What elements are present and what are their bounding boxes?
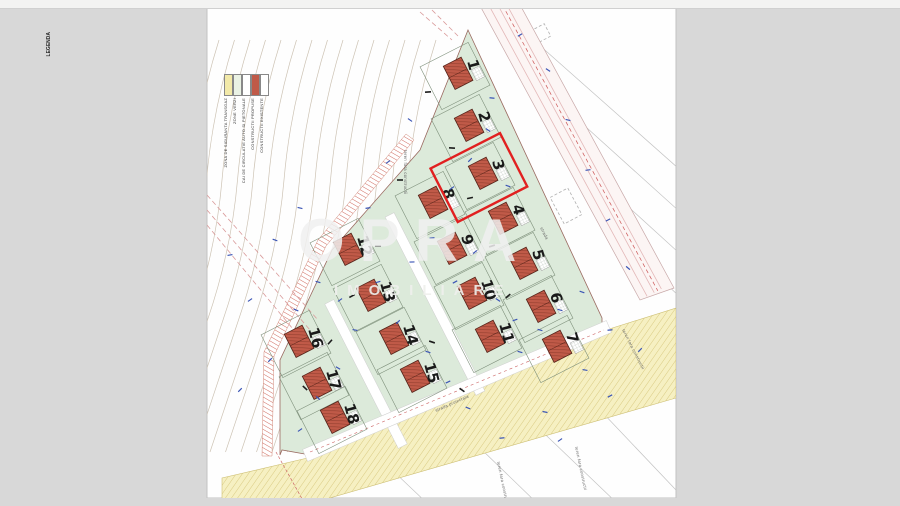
- survey-mark: [586, 170, 591, 171]
- legend-item: ZONE VERZI: [233, 70, 243, 188]
- map-label: teren fara constructii: [403, 150, 408, 195]
- scan-top-strip: [0, 0, 900, 9]
- legend-swatch: [251, 74, 260, 96]
- legend-swatch: [242, 74, 251, 96]
- legend-item: CAI DE CIRCULATIE AUTO SI PIETONALE: [242, 70, 252, 188]
- legend-swatch: [260, 74, 269, 96]
- scan-bottom-strip: [0, 498, 900, 506]
- legend-item: CONSTRUCTII PROPUSE: [251, 70, 261, 188]
- legend-item: CONSTRUCTII EXISTENTE: [260, 70, 270, 188]
- survey-mark: [366, 208, 371, 209]
- survey-mark: [583, 370, 588, 371]
- legend-item: ZONA DE SIGURANTA TRANSGAZ: [224, 70, 234, 188]
- screenshot-root: 123456789101112131415161718teren fara co…: [0, 0, 900, 506]
- survey-mark: [353, 330, 358, 331]
- legend: CONSTRUCTII EXISTENTECONSTRUCTII PROPUSE…: [224, 70, 286, 188]
- survey-mark: [228, 255, 233, 256]
- legend-item-label: ZONA DE SIGURANTA TRANSGAZ: [224, 98, 228, 168]
- legend-swatch: [224, 74, 233, 96]
- legend-title: LEGENDA: [46, 32, 52, 56]
- site-plan-drawing: 123456789101112131415161718teren fara co…: [0, 0, 900, 506]
- legend-swatch: [233, 74, 242, 96]
